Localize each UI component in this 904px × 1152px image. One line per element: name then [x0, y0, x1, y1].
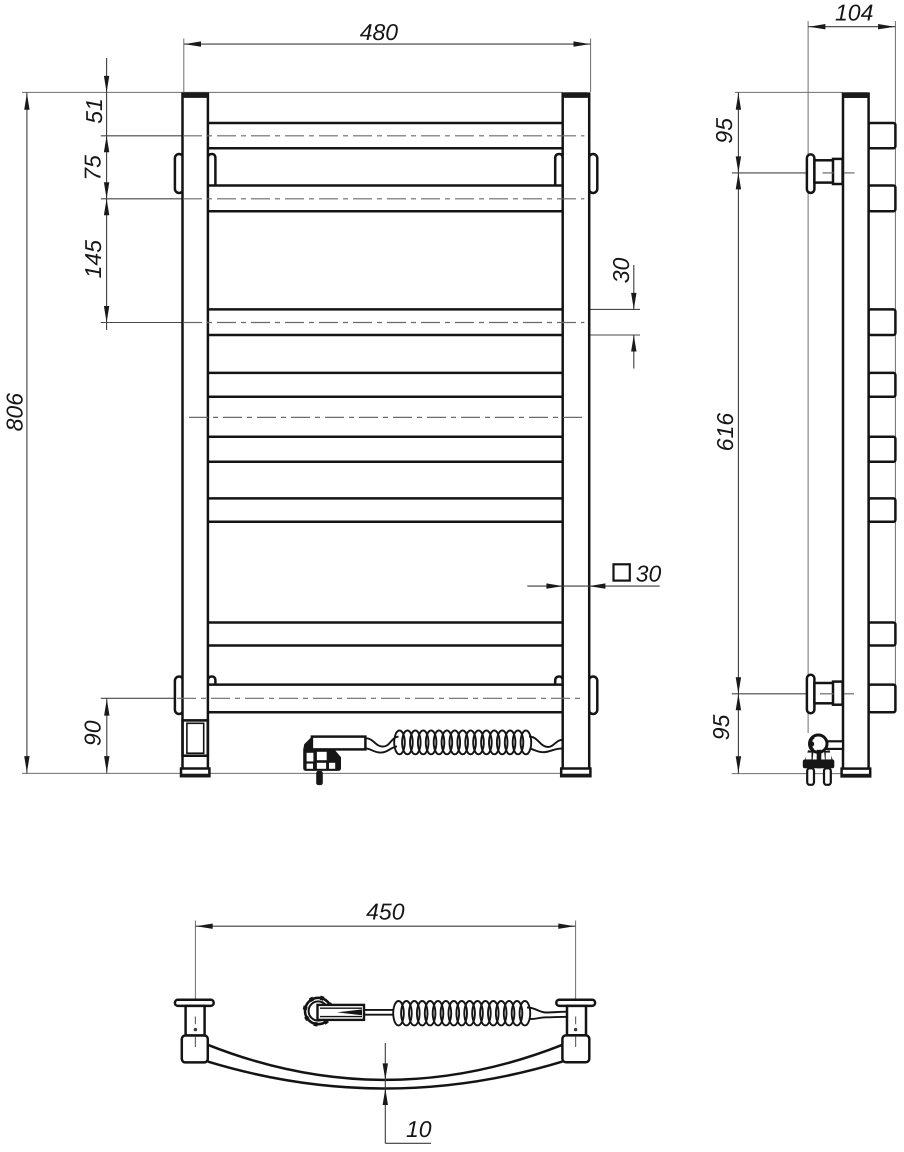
svg-text:616: 616 [712, 413, 738, 452]
svg-text:104: 104 [835, 0, 873, 25]
svg-text:75: 75 [80, 155, 106, 181]
svg-text:95: 95 [708, 714, 734, 740]
svg-text:480: 480 [360, 19, 399, 45]
svg-text:450: 450 [366, 899, 405, 925]
svg-text:145: 145 [80, 240, 106, 279]
svg-text:51: 51 [81, 98, 107, 124]
svg-text:806: 806 [2, 393, 28, 432]
svg-text:90: 90 [80, 720, 106, 746]
svg-text:30: 30 [636, 561, 662, 587]
svg-text:30: 30 [608, 258, 634, 284]
svg-text:95: 95 [711, 118, 737, 144]
svg-text:10: 10 [406, 1116, 432, 1142]
